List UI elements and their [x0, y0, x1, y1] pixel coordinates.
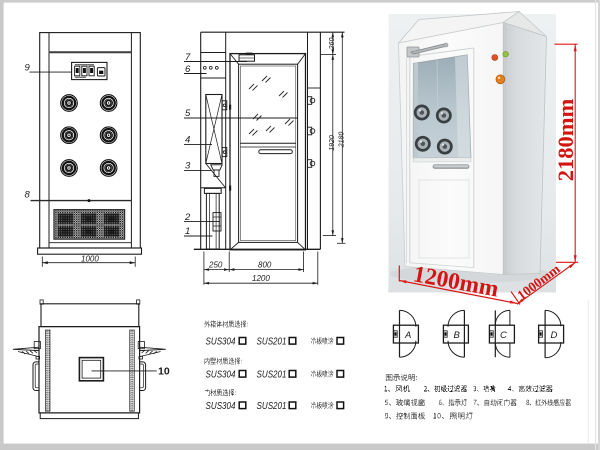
svg-text:SUS304: SUS304: [206, 370, 236, 381]
svg-text:10: 10: [158, 366, 170, 378]
svg-text:SUS201: SUS201: [257, 401, 287, 412]
svg-text:D: D: [551, 330, 558, 341]
svg-text:B: B: [454, 330, 461, 341]
svg-text:260: 260: [329, 38, 336, 51]
svg-text:2180: 2180: [339, 132, 346, 149]
svg-text:1000: 1000: [81, 254, 99, 263]
svg-text:SUS201: SUS201: [257, 337, 287, 348]
svg-text:A: A: [404, 330, 411, 341]
svg-text:SUS304: SUS304: [206, 337, 236, 348]
svg-text:1200: 1200: [252, 274, 270, 283]
svg-text:800: 800: [258, 261, 272, 270]
svg-text:SUS304: SUS304: [206, 401, 236, 412]
svg-text:SUS201: SUS201: [257, 370, 287, 381]
svg-text:8: 8: [25, 190, 31, 201]
svg-text:2180mm: 2180mm: [553, 99, 578, 182]
svg-text:C: C: [500, 330, 507, 341]
svg-text:1920: 1920: [329, 135, 336, 151]
svg-text:5: 5: [185, 108, 191, 119]
svg-text:250: 250: [208, 261, 223, 270]
